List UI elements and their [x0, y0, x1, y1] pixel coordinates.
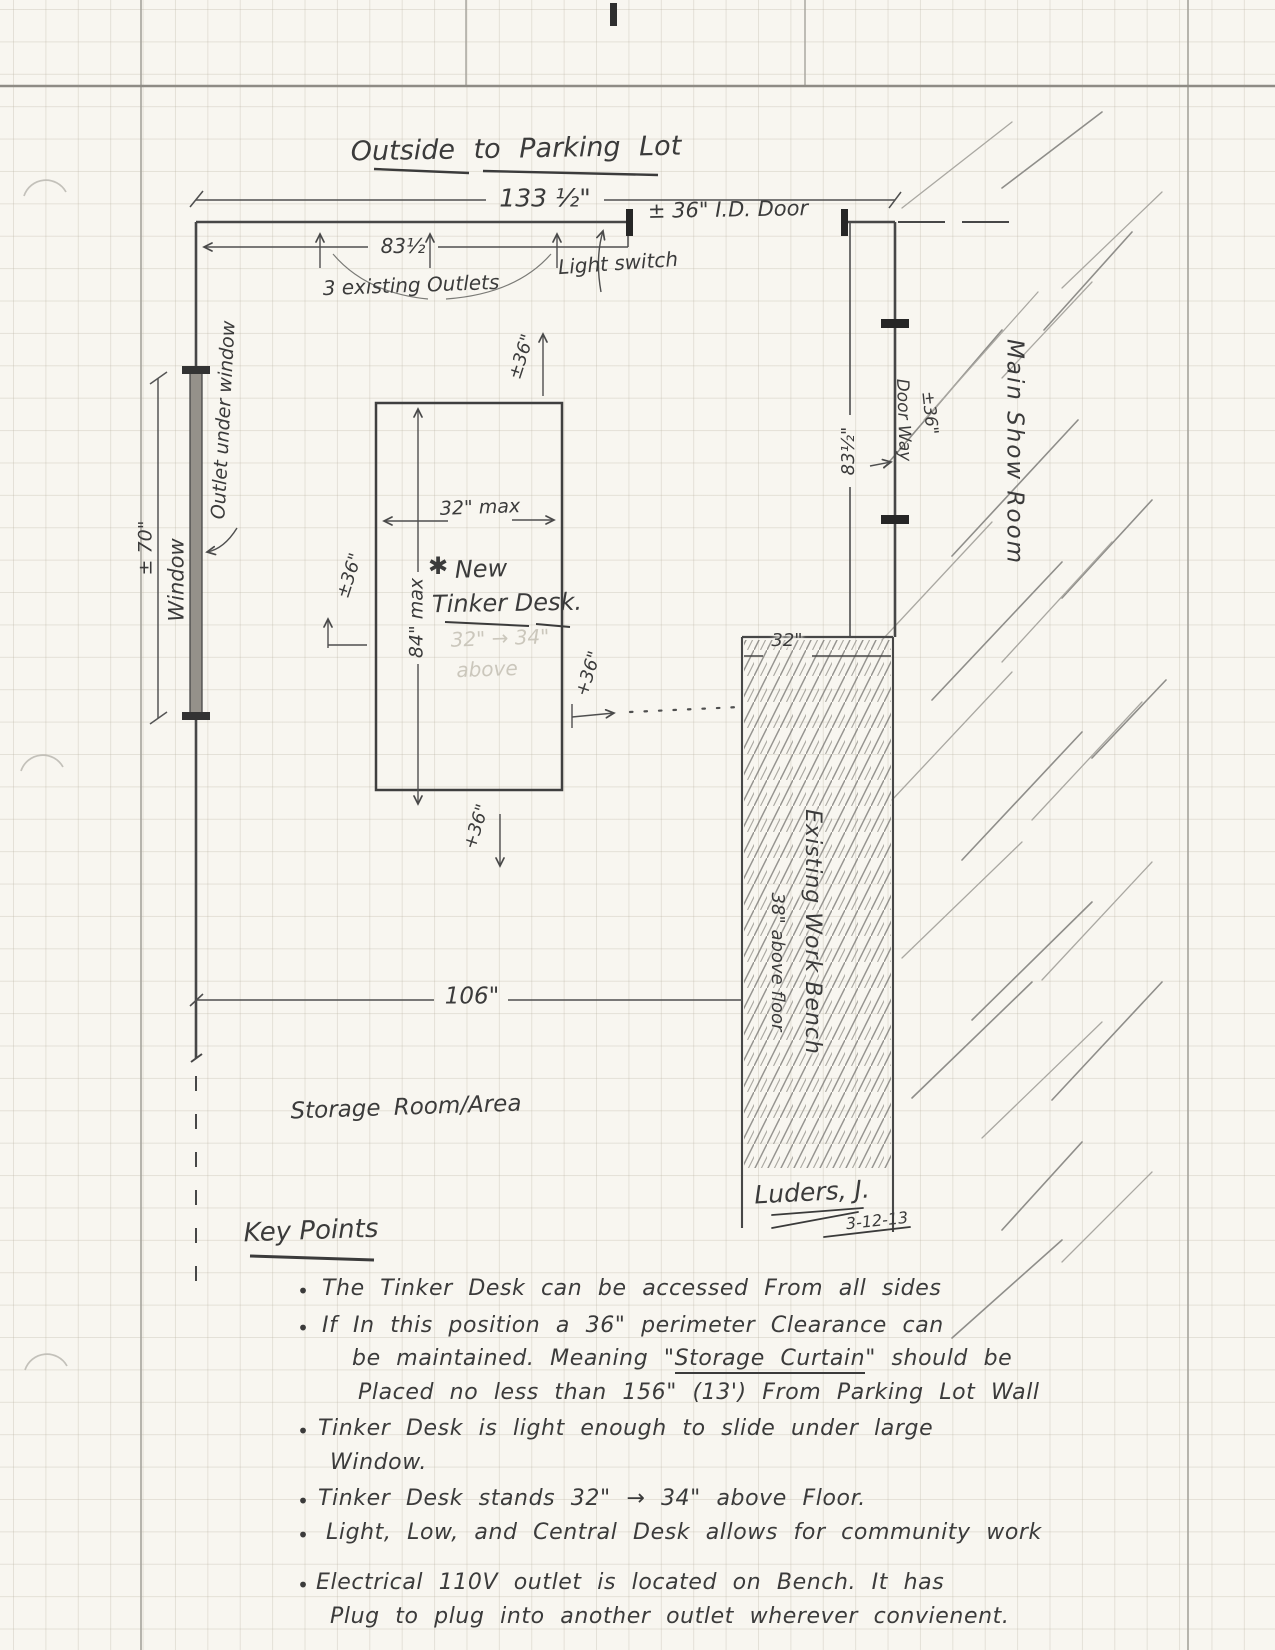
- desk-erased-line2: above: [456, 658, 518, 680]
- doorway-hinge-bottom: [881, 515, 909, 524]
- key-point-line: If In this position a 36" perimeter Clea…: [322, 1315, 944, 1337]
- key-point-line: Window.: [330, 1452, 427, 1474]
- desk-width-dim: 32" max: [440, 497, 521, 519]
- bullet-icon: •: [297, 1491, 309, 1511]
- doorway-dim: ±36": [918, 390, 939, 435]
- key-point-text: be maintained. Meaning ": [352, 1346, 675, 1371]
- key-point-line: The Tinker Desk can be accessed From all…: [322, 1278, 941, 1300]
- outlets-span-dim: 83½: [381, 236, 426, 256]
- main-show-room-label: Main Show Room: [1003, 339, 1026, 565]
- key-point-line: Plug to plug into another outlet whereve…: [330, 1606, 1009, 1628]
- scan-mark: [610, 3, 617, 26]
- bench-height-label: 38" above floor: [768, 893, 786, 1032]
- key-points-heading: Key Points: [243, 1216, 379, 1247]
- bullet-icon: •: [297, 1525, 309, 1545]
- page-title: Outside to Parking Lot: [350, 133, 681, 166]
- right-wall-dim: 83½": [840, 427, 858, 476]
- punch-hole-arcs: [21, 180, 67, 1370]
- key-point-line: Tinker Desk is light enough to slide und…: [318, 1418, 933, 1440]
- desk-width-arrow: [384, 520, 554, 521]
- bench-label: Existing Work Bench: [801, 809, 823, 1055]
- window-label: Window: [167, 538, 188, 621]
- scanned-floor-plan-page: Outside to Parking Lot 133 ½" ± 36" I.D.…: [0, 0, 1275, 1650]
- signature-name: Luders, J.: [754, 1176, 871, 1207]
- outlet-under-window-arrow: [207, 528, 237, 552]
- door-label: ± 36" I.D. Door: [648, 198, 809, 222]
- desk-name-line1: New: [454, 556, 507, 582]
- bench-width-dim: 32": [771, 632, 802, 650]
- door-way-label: Door Way: [893, 378, 913, 461]
- bullet-icon: •: [297, 1575, 309, 1595]
- door-jamb-right: [841, 209, 848, 236]
- key-point-line: Placed no less than 156" (13') From Park…: [358, 1382, 1040, 1404]
- outlets-label: 3 existing Outlets: [322, 272, 499, 298]
- window-height-dim: ± 70": [137, 521, 156, 576]
- key-point-line: Light, Low, and Central Desk allows for …: [326, 1522, 1042, 1544]
- overall-width-dim: 133 ½": [499, 186, 590, 211]
- desk-star-icon: ✱: [428, 554, 448, 578]
- bullet-icon: •: [297, 1421, 309, 1441]
- key-point-text: " should be: [865, 1346, 1012, 1371]
- key-point-line: Tinker Desk stands 32" → 34" above Floor…: [318, 1488, 866, 1510]
- key-point-line: Electrical 110V outlet is located on Ben…: [316, 1572, 944, 1594]
- door-jamb-left: [626, 209, 633, 236]
- storage-curtain-underlined: Storage Curtain: [675, 1346, 866, 1374]
- desk-name-line2: Tinker Desk.: [432, 590, 582, 617]
- key-point-line: be maintained. Meaning "Storage Curtain"…: [352, 1348, 1012, 1370]
- bullet-icon: •: [297, 1281, 309, 1301]
- show-room-hatching: [882, 112, 1166, 1338]
- storage-width-dim: 106": [445, 986, 499, 1009]
- desk-depth-dim: 84" max: [408, 578, 427, 658]
- desk-erased-line1: 32" → 34": [450, 626, 549, 649]
- doorway-hinge-top: [881, 319, 909, 328]
- bullet-icon: •: [297, 1318, 309, 1338]
